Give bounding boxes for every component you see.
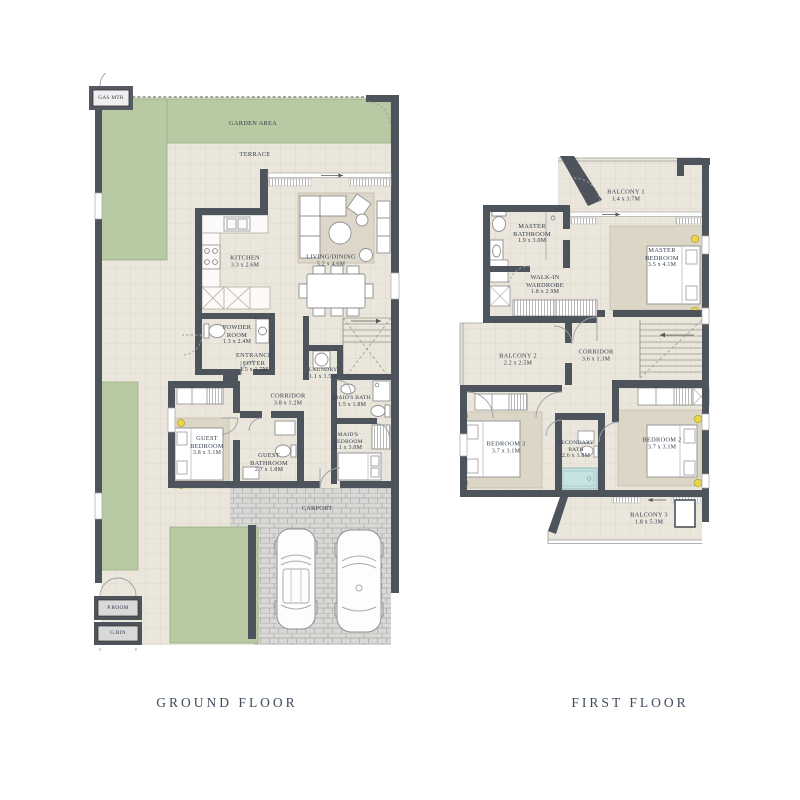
car-icon — [275, 529, 317, 629]
toilet-icon — [276, 445, 291, 457]
laundry-fixtures — [313, 351, 330, 368]
side-table — [360, 249, 373, 262]
toilet-icon — [493, 217, 506, 232]
bedside-lamp — [694, 415, 702, 423]
first-floor-drawing — [450, 148, 718, 552]
toilet-icon — [209, 325, 225, 338]
ground-floor-caption: GROUND FLOOR — [156, 695, 297, 711]
gas-meter-box — [89, 86, 133, 110]
toilet-icon — [581, 446, 593, 456]
ground-floor-drawing — [85, 73, 407, 651]
closet — [372, 425, 390, 449]
first-floor-caption: FIRST FLOOR — [571, 695, 688, 711]
car-icon — [335, 530, 383, 632]
first-floor-plan: BALCONY 1 1.4 x 3.7M MASTER BATHROOM 1.9… — [450, 148, 718, 552]
master-bedroom-furniture — [610, 226, 702, 315]
dining-table — [307, 274, 365, 308]
bedside-lamp — [691, 235, 699, 243]
vanity — [243, 467, 259, 479]
stove — [202, 245, 220, 269]
sink-icon — [578, 431, 594, 443]
bedside-lamp — [177, 419, 184, 426]
ground-floor-plan: GARDEN AREA TERRACE KITCHEN 3.3 x 2.6M L… — [85, 73, 407, 651]
tv-unit — [377, 201, 390, 253]
sofa — [300, 196, 320, 258]
bedside-lamp — [694, 479, 702, 487]
sink-icon — [490, 240, 503, 262]
sofa-chaise — [320, 196, 346, 216]
balcony3-column — [675, 500, 695, 527]
toilet-icon — [371, 406, 385, 417]
coffee-table — [329, 222, 351, 244]
floor-plan-sheet: GARDEN AREA TERRACE KITCHEN 3.3 x 2.6M L… — [0, 0, 800, 800]
toilet-tank — [204, 324, 209, 338]
guest-bedroom-furniture — [173, 388, 229, 489]
